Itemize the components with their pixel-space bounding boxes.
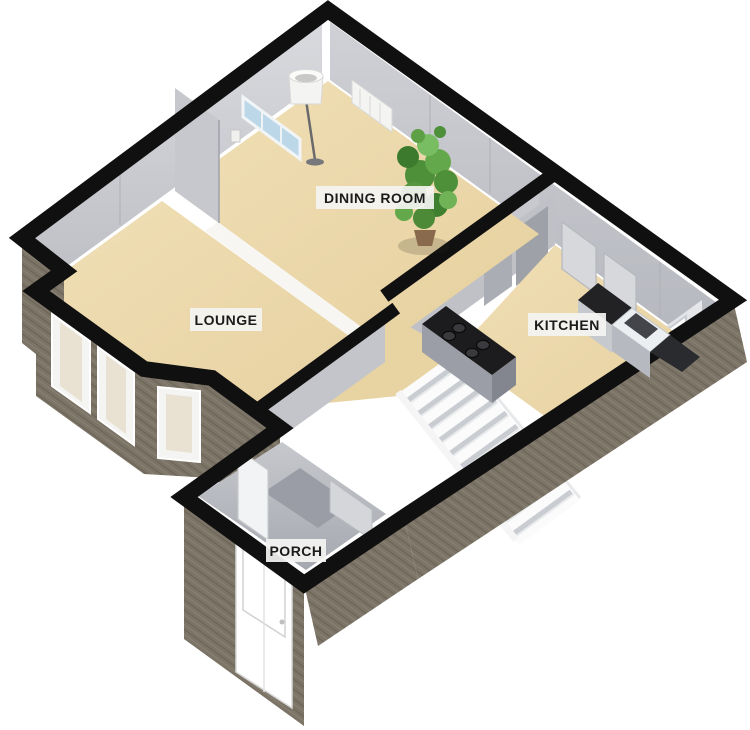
lounge-label: LOUNGE <box>195 312 258 328</box>
floorplan-page: DINING ROOM LOUNGE KITCHEN PORCH <box>0 0 750 730</box>
angled-window-pane <box>166 394 192 453</box>
label-dining-room: DINING ROOM <box>316 186 434 209</box>
label-lounge: LOUNGE <box>190 308 262 331</box>
porch-label: PORCH <box>269 543 322 559</box>
kitchen-label: KITCHEN <box>534 317 600 333</box>
label-kitchen: KITCHEN <box>528 313 606 336</box>
light-switch <box>231 130 240 142</box>
door-knob <box>280 620 285 625</box>
floorplan-3d-render: DINING ROOM LOUNGE KITCHEN PORCH <box>0 0 750 730</box>
label-porch: PORCH <box>266 539 326 562</box>
dining-room-label: DINING ROOM <box>324 190 426 206</box>
